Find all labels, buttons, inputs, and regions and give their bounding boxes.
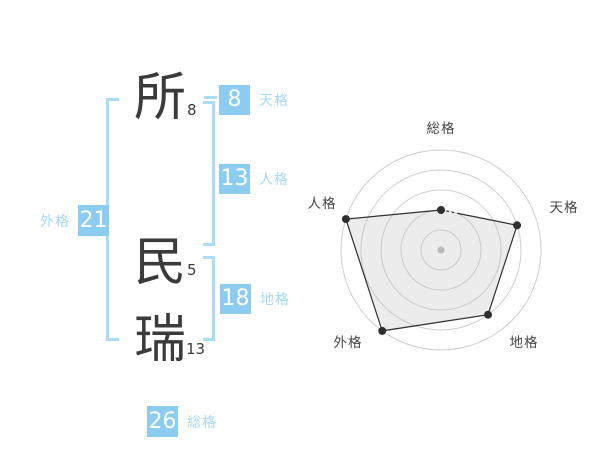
name-fortune-panel: 所 民 瑞 8 5 13 8 天格 13 人格 18 地格 外格 21 26 総…	[0, 0, 600, 470]
radar-data-point	[484, 311, 492, 319]
radar-chart: 総格天格地格外格人格	[0, 0, 600, 470]
radar-axis-label: 地格	[510, 335, 539, 351]
radar-data-point	[378, 327, 386, 335]
radar-axis-label: 天格	[550, 200, 579, 216]
radar-data-point	[437, 206, 445, 214]
radar-data-point	[342, 215, 350, 223]
radar-axis-label: 総格	[427, 121, 456, 137]
radar-axis-label: 人格	[308, 196, 337, 212]
radar-axis-label: 外格	[334, 335, 363, 351]
radar-data-point	[513, 221, 521, 229]
radar-center-dot	[438, 247, 445, 254]
